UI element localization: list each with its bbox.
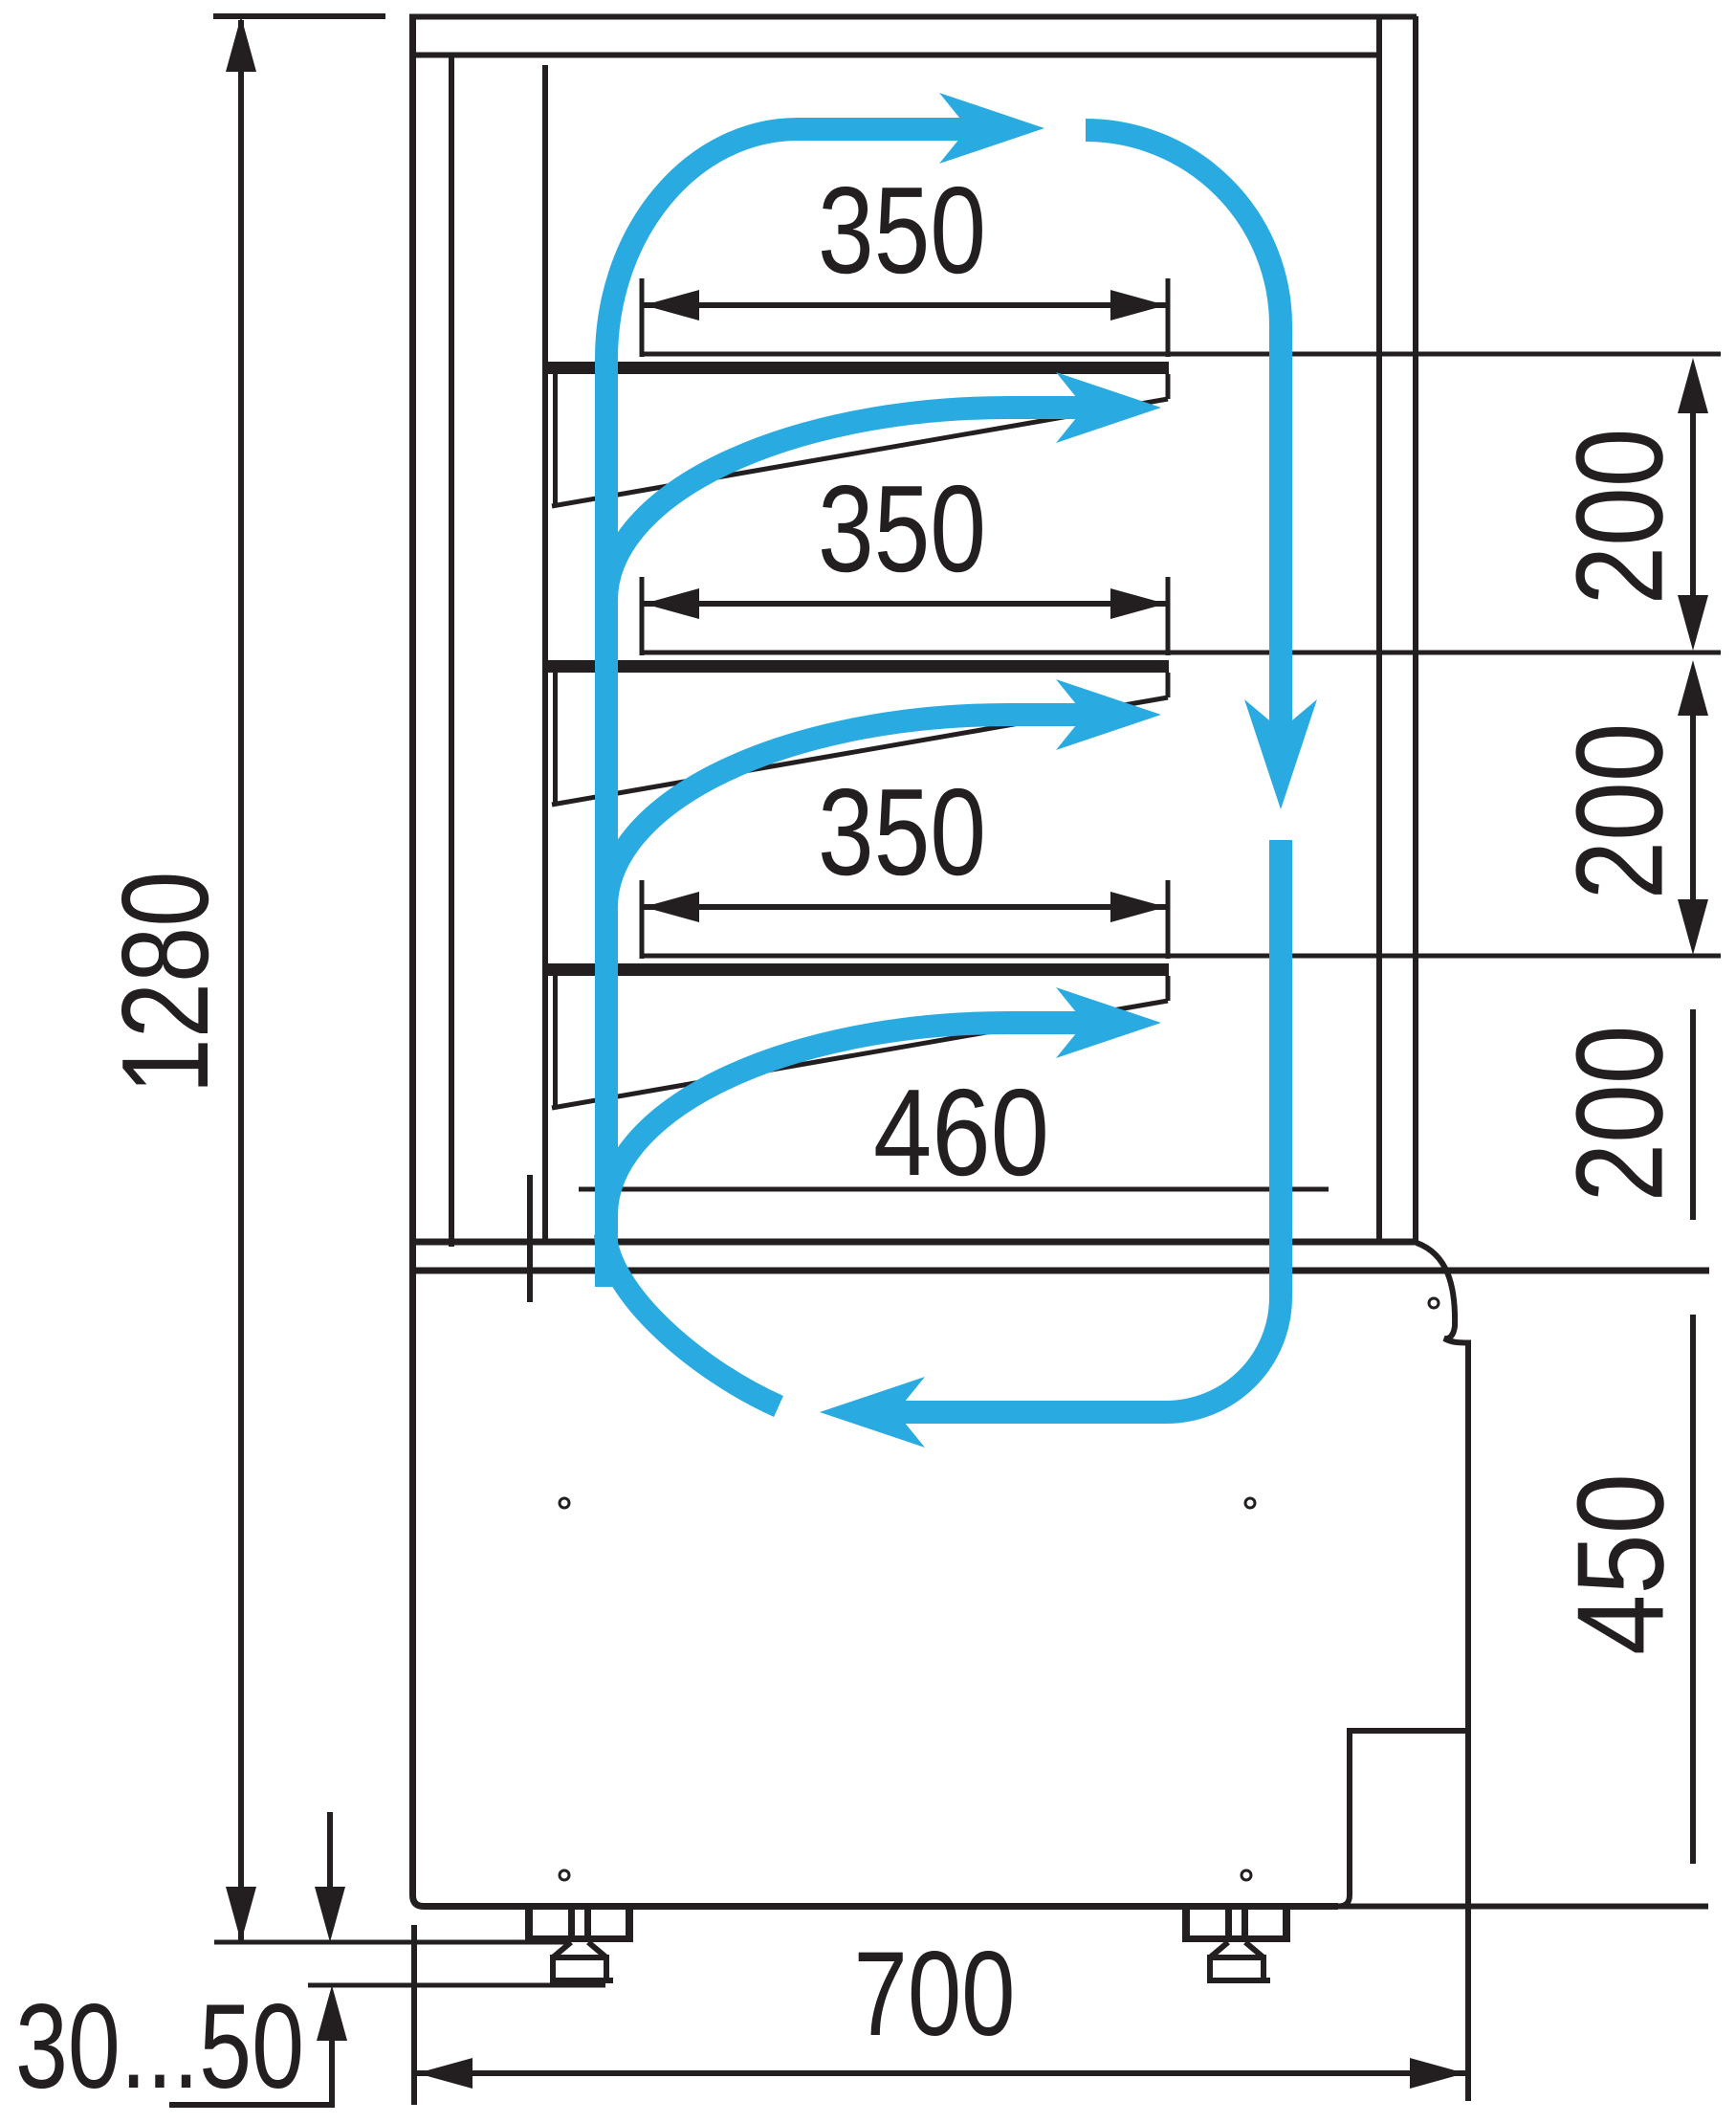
svg-text:460: 460: [873, 1064, 1049, 1202]
svg-text:350: 350: [818, 763, 986, 901]
svg-text:200: 200: [1551, 429, 1689, 606]
svg-text:200: 200: [1551, 1026, 1689, 1203]
svg-text:450: 450: [1552, 1473, 1690, 1655]
svg-text:1280: 1280: [97, 872, 234, 1095]
svg-text:200: 200: [1551, 723, 1689, 900]
svg-text:700: 700: [854, 1928, 1016, 2061]
svg-text:350: 350: [818, 460, 986, 598]
svg-text:350: 350: [818, 162, 986, 299]
svg-text:30...50: 30...50: [15, 1980, 304, 2113]
